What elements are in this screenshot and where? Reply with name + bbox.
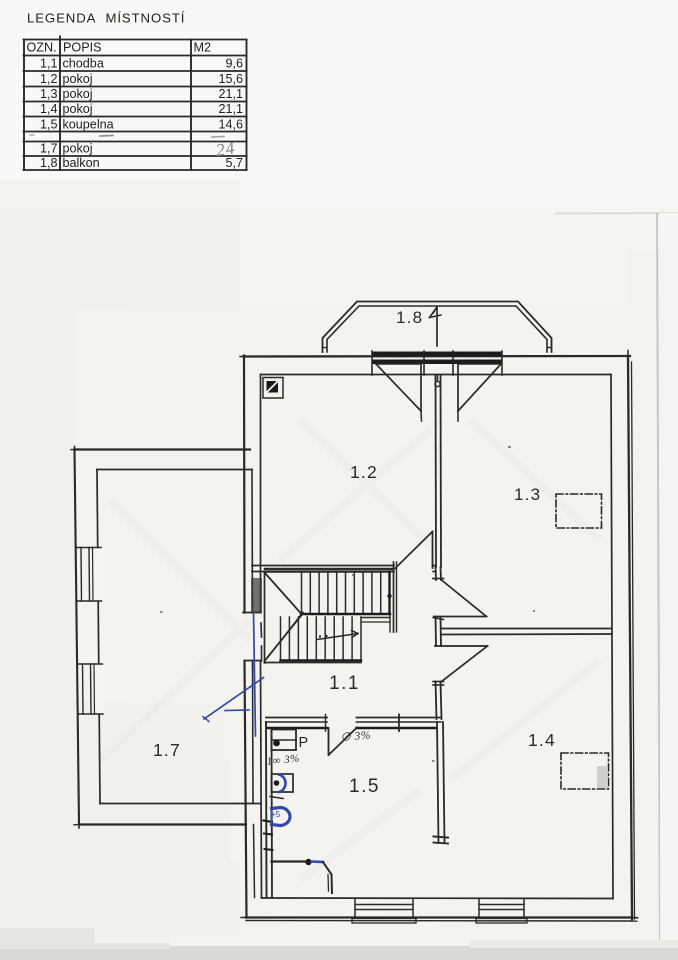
svg-text:1.1: 1.1: [329, 673, 360, 694]
svg-text:1,8: 1,8: [40, 156, 58, 170]
svg-text:1.3: 1.3: [514, 485, 541, 504]
svg-text:1.2: 1.2: [350, 462, 378, 482]
svg-text:1.4: 1.4: [528, 730, 556, 750]
svg-text:pokoj: pokoj: [63, 102, 93, 116]
svg-text:1.8: 1.8: [396, 308, 423, 327]
svg-text:POPIS: POPIS: [63, 41, 102, 55]
svg-text:chodba: chodba: [63, 57, 104, 71]
svg-text:1,2: 1,2: [40, 72, 58, 86]
svg-text:balkon: balkon: [63, 156, 100, 170]
svg-text:pokoj: pokoj: [63, 72, 93, 86]
svg-text:1,7: 1,7: [40, 142, 58, 156]
svg-text:15,6: 15,6: [218, 72, 243, 86]
svg-text:P: P: [299, 735, 309, 751]
svg-text:14,6: 14,6: [218, 117, 243, 131]
svg-text:1,1: 1,1: [40, 57, 58, 71]
svg-text:1.7: 1.7: [153, 740, 181, 760]
svg-text:9,6: 9,6: [225, 57, 243, 71]
svg-text:koupelna: koupelna: [63, 117, 114, 131]
svg-text:M2: M2: [194, 41, 212, 55]
svg-text:LEGENDA MÍSTNOSTÍ: LEGENDA MÍSTNOSTÍ: [27, 11, 185, 26]
svg-text:1.5: 1.5: [349, 776, 380, 797]
svg-text:+5: +5: [271, 810, 281, 819]
svg-text:1,4: 1,4: [40, 102, 58, 116]
svg-text:21,1: 21,1: [218, 102, 243, 116]
svg-text:1,5: 1,5: [40, 117, 58, 131]
svg-text:24: 24: [214, 137, 236, 160]
svg-text:pokoj: pokoj: [63, 142, 93, 156]
svg-text:21,1: 21,1: [218, 87, 243, 101]
svg-text:OZN.: OZN.: [27, 41, 57, 55]
svg-text:pokoj: pokoj: [63, 87, 93, 101]
svg-text:1,3: 1,3: [40, 87, 58, 101]
